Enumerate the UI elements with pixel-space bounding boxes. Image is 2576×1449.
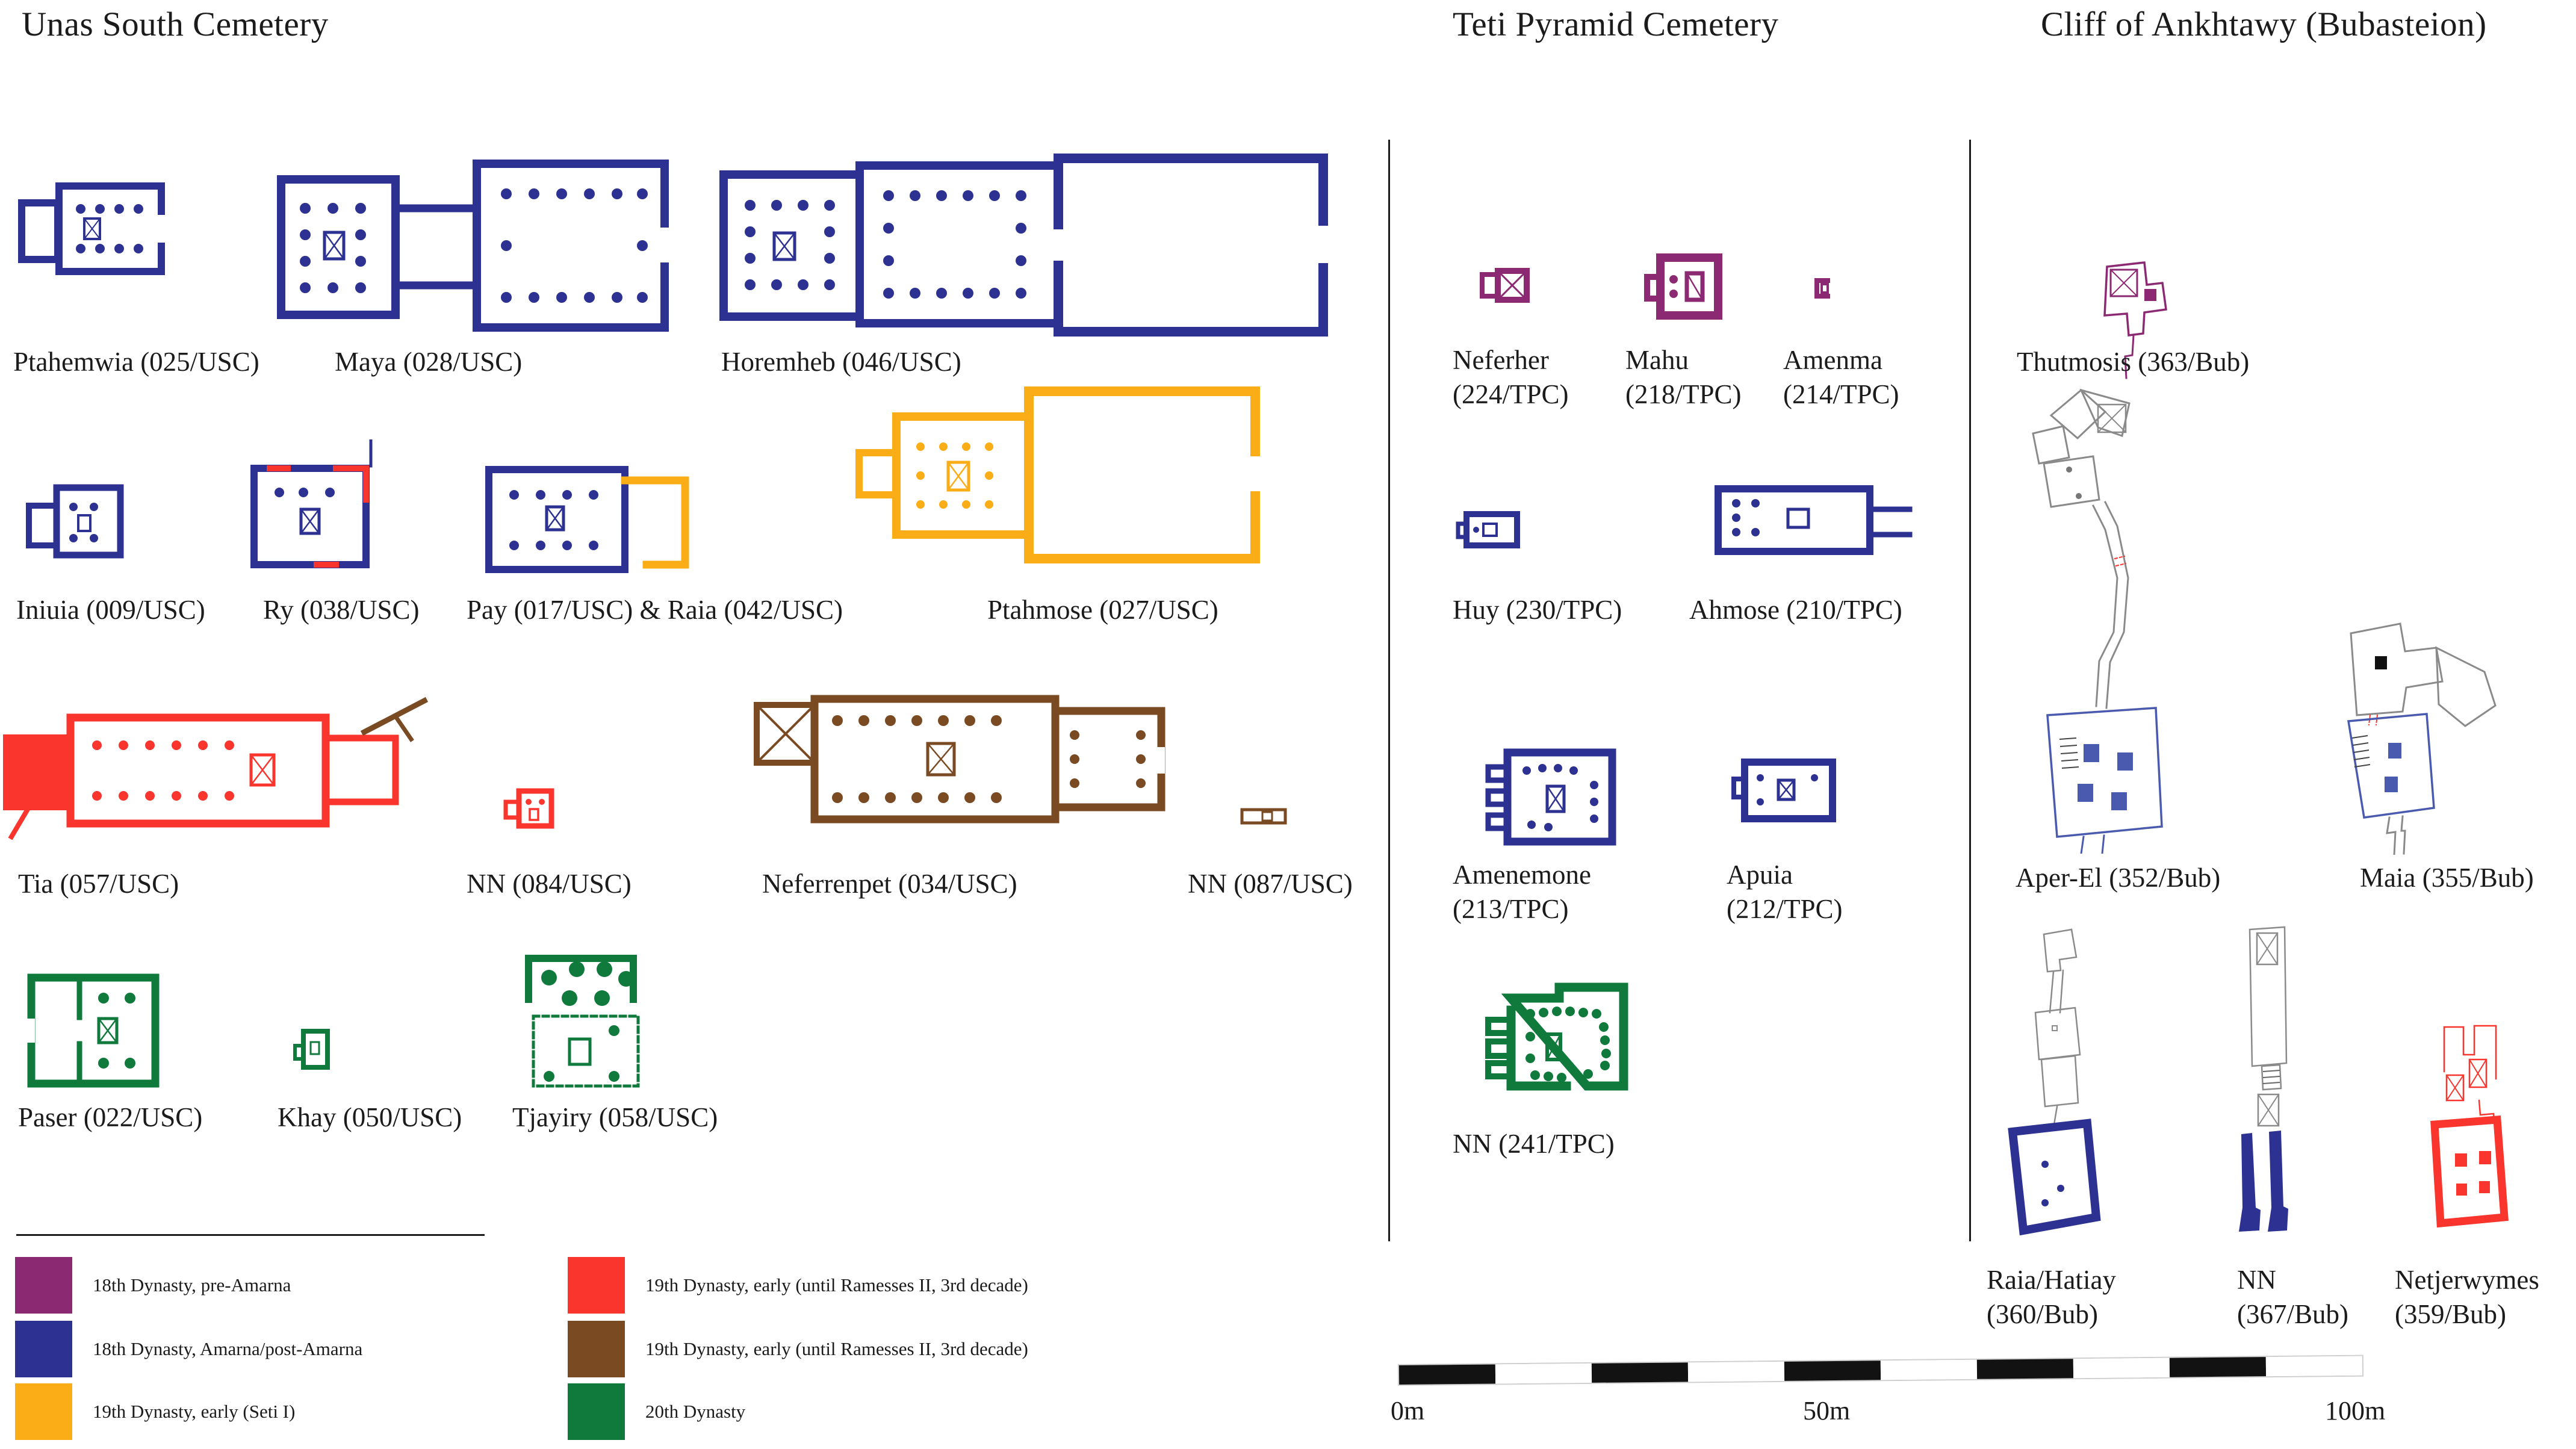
tomb-label-netjerwymes: Netjerwymes(359/Bub) <box>2395 1263 2539 1332</box>
tomb-plan-maya <box>274 150 674 343</box>
scale-bar-segment <box>1495 1364 1592 1384</box>
tomb-plan-amenemone <box>1476 745 1621 852</box>
tomb-plan-khay <box>289 1020 334 1081</box>
tomb-plan-ptahemwia <box>13 178 170 283</box>
tomb-label-line: Horemheb (046/USC) <box>721 345 961 379</box>
scale-bar <box>1398 1355 2363 1386</box>
tomb-label-line: (224/TPC) <box>1453 377 1569 412</box>
scale-bar-segment <box>1399 1364 1495 1385</box>
tomb-label-iniuia: Iniuia (009/USC) <box>16 593 205 627</box>
legend-swatch-brown <box>568 1321 625 1377</box>
scale-bar-segment <box>2170 1357 2266 1377</box>
tomb-plan-nn-084 <box>500 783 563 837</box>
tomb-plan-aper-el <box>2026 378 2173 857</box>
tomb-label-tjayiry: Tjayiry (058/USC) <box>512 1100 718 1135</box>
tomb-plan-netjerwymes <box>2421 1023 2518 1237</box>
tomb-label-line: Amenma <box>1783 343 1899 377</box>
tomb-label-line: (212/TPC) <box>1727 892 1843 926</box>
tomb-label-line: Mahu <box>1625 343 1742 377</box>
legend-swatch-yellow <box>15 1383 72 1440</box>
column-divider-usc-tpc <box>1388 140 1390 1241</box>
legend-label: 19th Dynasty, early (until Ramesses II, … <box>645 1274 1028 1296</box>
legend-divider-line <box>16 1234 485 1236</box>
tomb-label-line: Maya (028/USC) <box>335 345 522 379</box>
tomb-plan-neferher <box>1474 264 1534 310</box>
tomb-label-neferher: Neferher(224/TPC) <box>1453 343 1569 412</box>
scale-label-100m: 100m <box>2325 1395 2385 1426</box>
tomb-plan-ry <box>246 439 399 578</box>
tomb-plan-paser <box>24 969 166 1096</box>
tomb-label-line: Ptahemwia (025/USC) <box>13 345 259 379</box>
scale-bar-segment <box>2073 1358 2170 1379</box>
tomb-label-line: Maia (355/Bub) <box>2360 861 2534 895</box>
tomb-label-huy: Huy (230/TPC) <box>1453 593 1622 627</box>
tomb-plan-ptahmose <box>852 379 1264 572</box>
tomb-plan-horemheb <box>716 147 1333 346</box>
tomb-label-nn-087: NN (087/USC) <box>1188 867 1353 901</box>
tomb-label-maya: Maya (028/USC) <box>335 345 522 379</box>
tomb-label-line: (359/Bub) <box>2395 1297 2539 1332</box>
legend-item-19th-early-red: 19th Dynasty, early (until Ramesses II, … <box>568 1257 1028 1314</box>
tomb-label-khay: Khay (050/USC) <box>278 1100 462 1135</box>
scale-bar-segment <box>2266 1356 2362 1377</box>
scale-label-0m: 0m <box>1391 1395 1424 1426</box>
tomb-label-line: Apuia <box>1727 858 1843 892</box>
tomb-label-line: (360/Bub) <box>1987 1297 2116 1332</box>
legend-label: 19th Dynasty, early (Seti I) <box>93 1401 295 1423</box>
tomb-plan-nn-241 <box>1470 976 1636 1103</box>
tomb-label-line: Huy (230/TPC) <box>1453 593 1622 627</box>
tomb-plan-huy <box>1451 507 1523 555</box>
column-divider-tpc-bub <box>1969 140 1971 1241</box>
legend-label: 18th Dynasty, pre-Amarna <box>93 1274 291 1296</box>
section-title-teti-pyramid-cemetery: Teti Pyramid Cemetery <box>1453 5 1779 44</box>
tomb-label-line: Tjayiry (058/USC) <box>512 1100 718 1135</box>
tomb-label-apuia: Apuia(212/TPC) <box>1727 858 1843 926</box>
section-title-unas-south-cemetery: Unas South Cemetery <box>22 5 329 44</box>
tomb-label-pay-raia: Pay (017/USC) & Raia (042/USC) <box>467 593 843 627</box>
legend-item-20th-dynasty: 20th Dynasty <box>568 1383 745 1440</box>
tomb-label-line: (214/TPC) <box>1783 377 1899 412</box>
legend-item-19th-early-brown: 19th Dynasty, early (until Ramesses II, … <box>568 1321 1028 1377</box>
tomb-label-amenemone: Amenemone(213/TPC) <box>1453 858 1591 926</box>
tomb-label-line: Raia/Hatiay <box>1987 1263 2116 1297</box>
tomb-label-line: Thutmosis (363/Bub) <box>2017 345 2249 379</box>
tomb-plan-tia <box>3 692 436 846</box>
tomb-plan-pay-raia <box>482 445 695 581</box>
tomb-label-line: Aper-El (352/Bub) <box>2016 861 2220 895</box>
legend-item-19th-early-seti-i: 19th Dynasty, early (Seti I) <box>15 1383 295 1440</box>
legend-swatch-red <box>568 1257 625 1314</box>
tomb-label-aper-el: Aper-El (352/Bub) <box>2016 861 2220 895</box>
tomb-label-line: (367/Bub) <box>2237 1297 2348 1332</box>
tomb-plan-amenma <box>1811 276 1831 304</box>
legend-swatch-green <box>568 1383 625 1440</box>
tomb-plan-apuia <box>1725 754 1843 830</box>
tomb-label-paser: Paser (022/USC) <box>18 1100 202 1135</box>
tomb-label-maia-bub: Maia (355/Bub) <box>2360 861 2534 895</box>
tomb-label-line: Ptahmose (027/USC) <box>987 593 1218 627</box>
tomb-plan-raia-hatiay <box>2002 928 2107 1241</box>
tomb-label-nn-241: NN (241/TPC) <box>1453 1127 1615 1161</box>
scale-bar-segment <box>1784 1361 1881 1381</box>
legend-label: 19th Dynasty, early (until Ramesses II, … <box>645 1338 1028 1360</box>
scale-bar-segment <box>1881 1360 1977 1380</box>
tomb-plan-tjayiry <box>512 939 659 1108</box>
tomb-label-line: Netjerwymes <box>2395 1263 2539 1297</box>
tomb-label-raia-hatiay: Raia/Hatiay(360/Bub) <box>1987 1263 2116 1332</box>
tomb-label-ahmose: Ahmose (210/TPC) <box>1689 593 1902 627</box>
tomb-label-line: Neferrenpet (034/USC) <box>762 867 1017 901</box>
scale-bar-segment <box>1592 1362 1688 1383</box>
section-title-cliff-of-ankhtawy: Cliff of Ankhtawy (Bubasteion) <box>2041 5 2487 44</box>
tomb-label-line: NN (087/USC) <box>1188 867 1353 901</box>
tomb-plan-nn-087 <box>1237 805 1291 830</box>
tomb-label-line: Iniuia (009/USC) <box>16 593 205 627</box>
tomb-label-line: NN (241/TPC) <box>1453 1127 1615 1161</box>
tomb-label-line: (213/TPC) <box>1453 892 1591 926</box>
tomb-label-ptahemwia: Ptahemwia (025/USC) <box>13 345 259 379</box>
tomb-label-line: Ry (038/USC) <box>263 593 419 627</box>
tomb-label-tia: Tia (057/USC) <box>18 867 179 901</box>
tomb-plan-neferrenpet <box>750 683 1171 837</box>
scale-label-50m: 50m <box>1803 1395 1850 1426</box>
tomb-label-line: Paser (022/USC) <box>18 1100 202 1135</box>
legend-label: 18th Dynasty, Amarna/post-Amarna <box>93 1338 362 1360</box>
tomb-label-ptahmose: Ptahmose (027/USC) <box>987 593 1218 627</box>
tomb-label-line: Amenemone <box>1453 858 1591 892</box>
tomb-label-ry: Ry (038/USC) <box>263 593 419 627</box>
tomb-plan-mahu <box>1639 252 1726 326</box>
tomb-label-line: Khay (050/USC) <box>278 1100 462 1135</box>
tomb-label-nn-367: NN(367/Bub) <box>2237 1263 2348 1332</box>
scale-bar-segment <box>1688 1362 1784 1382</box>
tomb-label-line: Ahmose (210/TPC) <box>1689 593 1902 627</box>
tomb-plan-maia-bub <box>2315 614 2501 858</box>
tomb-label-line: (218/TPC) <box>1625 377 1742 412</box>
tomb-label-line: Pay (017/USC) & Raia (042/USC) <box>467 593 843 627</box>
tomb-label-nn-084: NN (084/USC) <box>467 867 632 901</box>
legend-label: 20th Dynasty <box>645 1401 745 1423</box>
tomb-label-line: Tia (057/USC) <box>18 867 179 901</box>
tomb-label-neferrenpet: Neferrenpet (034/USC) <box>762 867 1017 901</box>
legend-swatch-purple <box>15 1257 72 1314</box>
tomb-label-line: Neferher <box>1453 343 1569 377</box>
tomb-label-amenma: Amenma(214/TPC) <box>1783 343 1899 412</box>
legend-swatch-blue <box>15 1321 72 1377</box>
tomb-label-line: NN (084/USC) <box>467 867 632 901</box>
tomb-label-line: NN <box>2237 1263 2348 1297</box>
scale-bar-segment <box>1977 1359 2073 1379</box>
tomb-plan-nn-367 <box>2224 926 2306 1245</box>
legend-item-18th-pre-amarna: 18th Dynasty, pre-Amarna <box>15 1257 291 1314</box>
tomb-plan-iniuia <box>23 476 128 569</box>
legend-item-18th-amarna-post-amarna: 18th Dynasty, Amarna/post-Amarna <box>15 1321 362 1377</box>
tomb-label-thutmosis: Thutmosis (363/Bub) <box>2017 345 2249 379</box>
tomb-plan-ahmose <box>1711 480 1913 565</box>
tomb-label-mahu: Mahu(218/TPC) <box>1625 343 1742 412</box>
tomb-label-horemheb: Horemheb (046/USC) <box>721 345 961 379</box>
